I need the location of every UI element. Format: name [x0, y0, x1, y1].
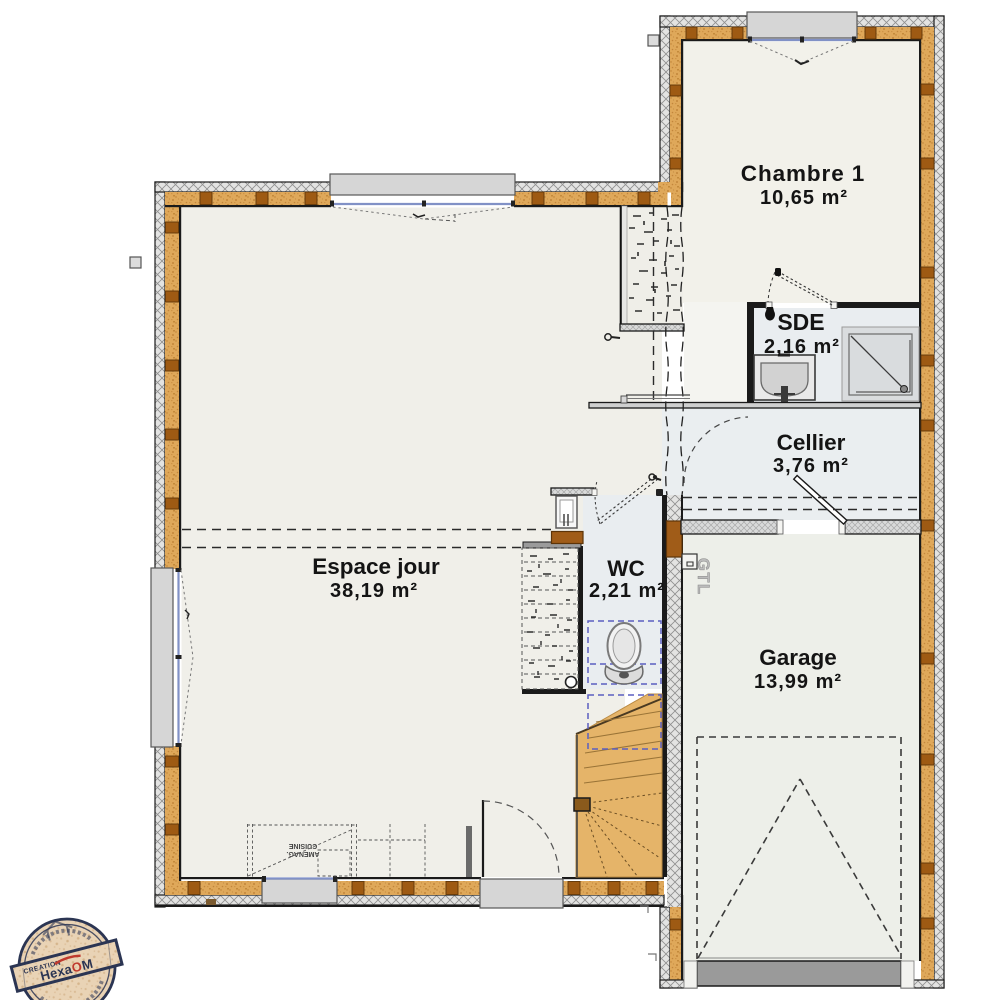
svg-text:Garage: Garage	[759, 645, 837, 670]
svg-text:Espace jour: Espace jour	[312, 554, 440, 579]
svg-text:WC: WC	[607, 556, 645, 581]
svg-text:CUISINE: CUISINE	[288, 842, 317, 849]
svg-text:3,76 m²: 3,76 m²	[773, 455, 849, 477]
svg-text:2,21 m²: 2,21 m²	[589, 580, 665, 602]
svg-text:Chambre 1: Chambre 1	[741, 161, 865, 186]
svg-text:SDE: SDE	[777, 309, 824, 335]
svg-text:AMENAG.: AMENAG.	[286, 850, 319, 857]
svg-text:38,19 m²: 38,19 m²	[330, 580, 418, 602]
svg-text:10,65 m²: 10,65 m²	[760, 187, 848, 209]
svg-text:GTL: GTL	[694, 558, 712, 596]
svg-text:2,16 m²: 2,16 m²	[764, 336, 840, 358]
svg-text:Cellier: Cellier	[777, 430, 846, 455]
svg-text:13,99 m²: 13,99 m²	[754, 671, 842, 693]
